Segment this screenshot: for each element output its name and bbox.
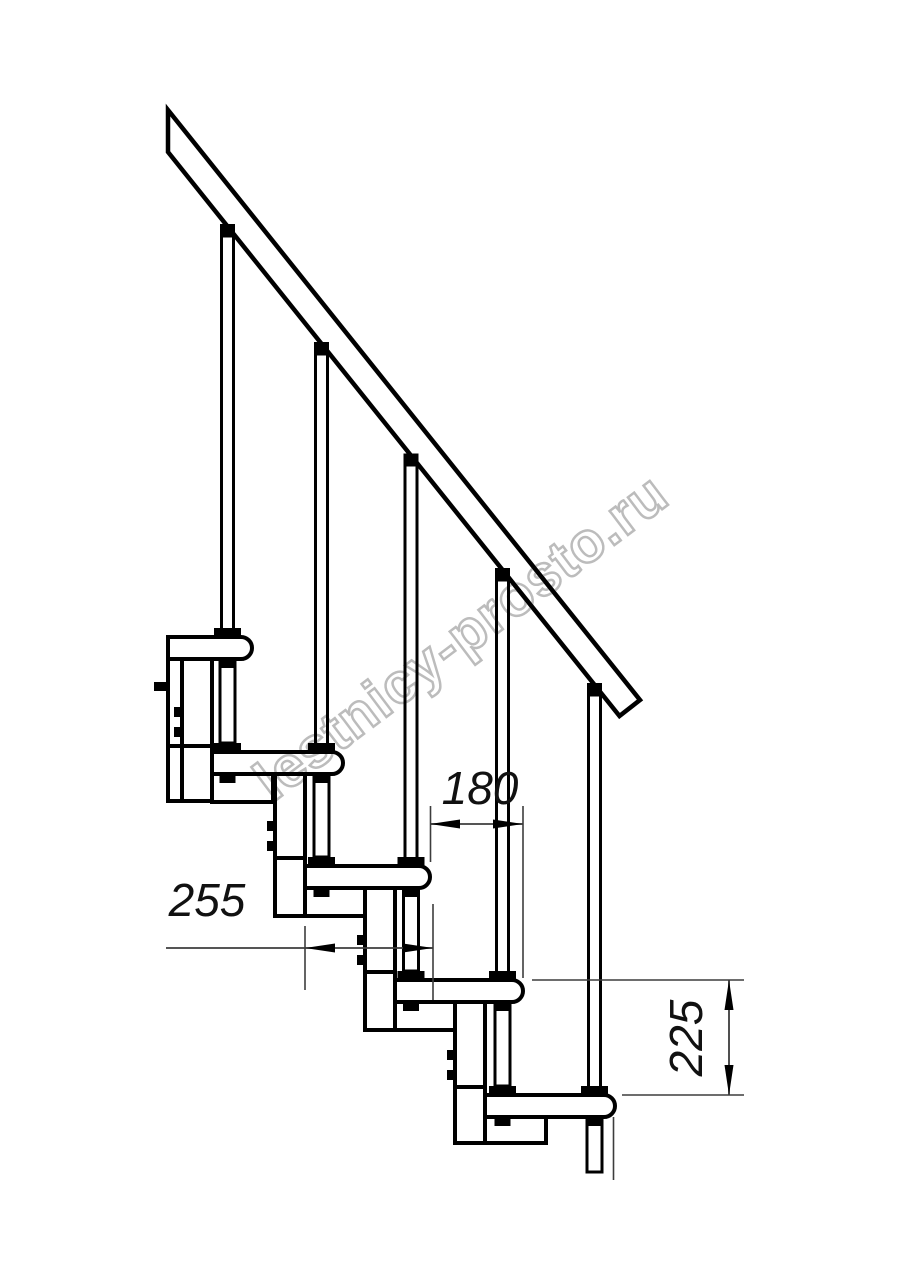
rod-sleeve-1 (220, 659, 235, 743)
rail-cap-icon (495, 568, 510, 581)
bolt-icon (174, 727, 184, 737)
shoe-icon (214, 628, 241, 638)
bolt-icon (174, 707, 184, 717)
rail-cap-icon (220, 224, 235, 237)
drawing-svg: 180 255 225 (0, 0, 914, 1280)
nut-icon (314, 774, 330, 783)
dimension-label-run: 180 (442, 762, 519, 814)
stringer-column-4 (455, 1002, 485, 1143)
bolt-icon (447, 1050, 457, 1060)
shoe-icon (489, 1086, 516, 1096)
nut-icon (220, 774, 236, 783)
stringer-column-1 (182, 658, 212, 801)
rail-cap-icon (314, 342, 329, 355)
dimension-label-rise: 225 (660, 999, 712, 1077)
staircase-technical-drawing: 180 255 225 lestnicy-prosto.ru (0, 0, 914, 1280)
baluster-3 (405, 465, 417, 868)
shoe-icon (214, 743, 241, 753)
bolt-icon (357, 935, 367, 945)
rod-sleeve-4 (495, 1002, 510, 1086)
stringer-box-under-tread-5 (485, 1116, 546, 1143)
arrow-left-icon (430, 820, 460, 829)
nut-icon (403, 1002, 419, 1011)
bolt-icon (447, 1070, 457, 1080)
rod-sleeve-2 (314, 773, 329, 857)
shoe-icon (308, 743, 335, 753)
shoe-icon (398, 857, 425, 867)
baluster-1 (222, 236, 234, 639)
nut-icon (220, 659, 236, 668)
rail-cap-icon (587, 683, 602, 696)
arrow-up-icon (725, 980, 734, 1010)
dimension-label-depth: 255 (168, 874, 246, 926)
rail-cap-icon (404, 454, 419, 467)
remnant-tab (154, 682, 168, 691)
bolt-icon (267, 821, 277, 831)
stringer-column-3 (365, 888, 395, 1030)
arrow-down-icon (725, 1065, 734, 1095)
arrow-left-icon (305, 944, 335, 953)
tread-2 (212, 752, 343, 774)
bolt-icon (357, 955, 367, 965)
baluster-5 (589, 695, 601, 1097)
stringer-column-2 (275, 773, 305, 916)
nut-icon (495, 1117, 511, 1126)
tread-3 (305, 866, 430, 888)
rod-sleeve-3 (404, 888, 419, 971)
shoe-icon (398, 971, 425, 981)
baluster-2 (316, 354, 328, 754)
shoe-icon (489, 971, 516, 981)
nut-icon (495, 1002, 511, 1011)
tread-4 (395, 980, 523, 1002)
bolt-icon (267, 841, 277, 851)
nut-icon (314, 888, 330, 897)
shoe-icon (308, 857, 335, 867)
nut-icon (403, 888, 419, 897)
tread-5 (485, 1095, 615, 1117)
dimension-225: 225 (532, 980, 744, 1095)
shoe-icon (581, 1086, 608, 1096)
nut-icon (587, 1117, 603, 1126)
tread-1 (168, 637, 252, 659)
